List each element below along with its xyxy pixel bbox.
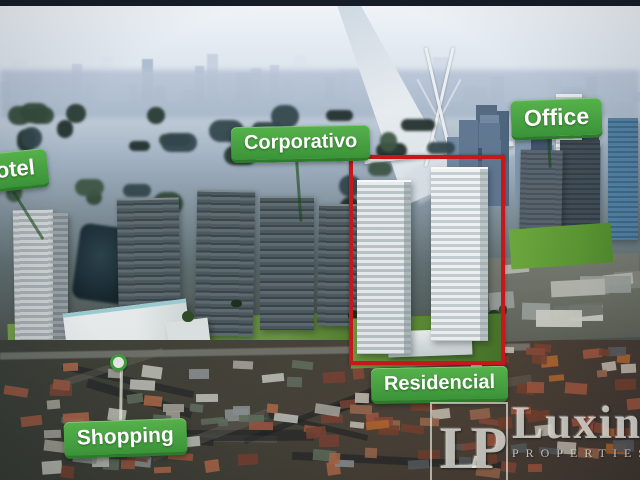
top-letterbox — [0, 0, 640, 6]
tree — [182, 311, 194, 322]
highlight-box-residencial — [349, 155, 505, 365]
label-shopping: Shopping — [63, 418, 187, 459]
label-residencial: Residencial — [371, 366, 509, 404]
label-office: Office — [510, 97, 603, 140]
tree — [231, 300, 242, 307]
label-corporativo: Corporativo — [231, 125, 371, 163]
lawn-trees — [0, 0, 640, 480]
map-pin-icon — [110, 354, 127, 371]
aerial-photo: Hotel Corporativo Office Residencial Sho… — [0, 0, 640, 480]
